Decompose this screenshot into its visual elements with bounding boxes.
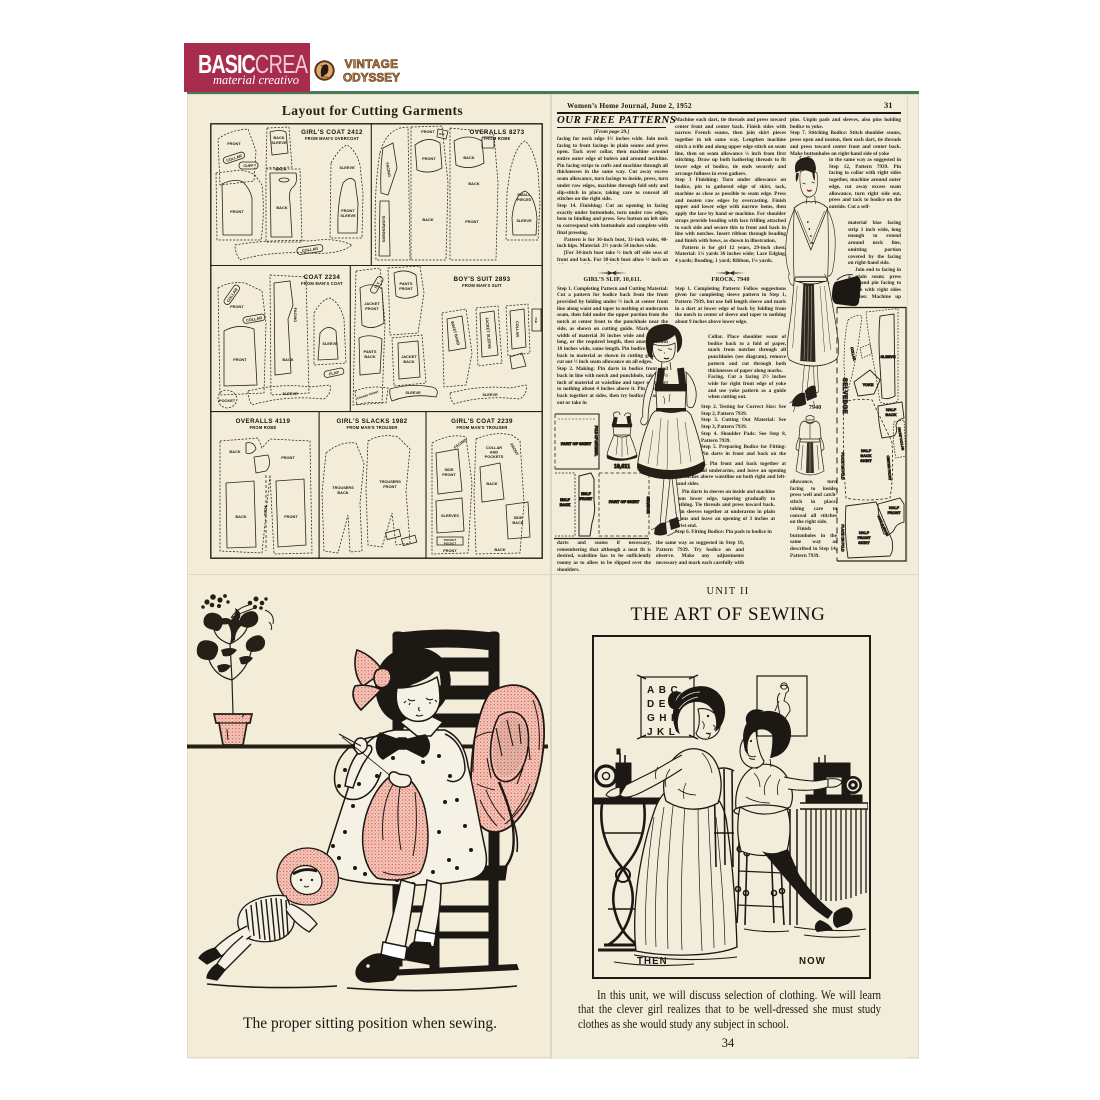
svg-text:JKL: JKL bbox=[647, 727, 679, 738]
svg-text:BACK: BACK bbox=[422, 217, 433, 222]
svg-text:BACK: BACK bbox=[403, 359, 414, 364]
svg-text:JACKET SLEEVE: JACKET SLEEVE bbox=[484, 317, 492, 350]
svg-text:OVERALLS 4119: OVERALLS 4119 bbox=[235, 418, 290, 425]
svg-text:FRONT: FRONT bbox=[227, 141, 241, 146]
svg-text:FROM MAN'S TROUSER: FROM MAN'S TROUSER bbox=[346, 425, 397, 430]
svg-text:FRONT: FRONT bbox=[399, 286, 413, 291]
svg-text:FRONT: FRONT bbox=[284, 514, 298, 519]
svg-text:SKIRT: SKIRT bbox=[858, 541, 870, 545]
svg-text:SKIRT: SKIRT bbox=[860, 459, 872, 463]
svg-text:FRONT: FRONT bbox=[383, 484, 397, 489]
svg-text:FRONT: FRONT bbox=[509, 442, 520, 457]
svg-text:BACK: BACK bbox=[560, 503, 571, 507]
svg-text:TAB: TAB bbox=[534, 317, 538, 324]
svg-text:FRONT: FRONT bbox=[442, 472, 456, 477]
svg-text:COLLAR: COLLAR bbox=[850, 347, 857, 362]
svg-text:BOY'S SUIT 2893: BOY'S SUIT 2893 bbox=[453, 276, 510, 283]
svg-text:FRONT: FRONT bbox=[580, 497, 593, 501]
svg-text:GIRL'S COAT 2412: GIRL'S COAT 2412 bbox=[301, 129, 363, 136]
svg-text:VINTAGE: VINTAGE bbox=[345, 57, 399, 71]
svg-text:FRONT: FRONT bbox=[422, 156, 436, 161]
svg-text:POCKETS: POCKETS bbox=[484, 454, 503, 459]
svg-text:FACING: FACING bbox=[293, 308, 298, 323]
svg-text:FRONT COLLAR: FRONT COLLAR bbox=[897, 427, 905, 451]
svg-text:SLEEVE: SLEEVE bbox=[322, 341, 338, 346]
svg-text:WAIST BAND: WAIST BAND bbox=[449, 321, 460, 346]
svg-text:FROM MAN'S COAT: FROM MAN'S COAT bbox=[301, 281, 343, 286]
svg-text:POCKET: POCKET bbox=[218, 398, 235, 403]
svg-text:BACK: BACK bbox=[886, 413, 897, 417]
svg-text:SLEEVES: SLEEVES bbox=[441, 513, 459, 518]
svg-text:BACK: BACK bbox=[282, 357, 293, 362]
svg-text:SLEEVE: SLEEVE bbox=[482, 392, 498, 397]
svg-text:SLEEVE: SLEEVE bbox=[405, 390, 421, 395]
svg-text:PART OF SKIRT: PART OF SKIRT bbox=[561, 441, 592, 446]
svg-text:SUSPENDERS: SUSPENDERS bbox=[381, 216, 386, 243]
svg-text:FACING: FACING bbox=[452, 437, 467, 450]
svg-text:FRONT: FRONT bbox=[465, 219, 479, 224]
svg-text:BACK: BACK bbox=[463, 155, 474, 160]
svg-text:FROM ROBE: FROM ROBE bbox=[249, 425, 276, 430]
svg-text:FROM MAN'S TROUSER: FROM MAN'S TROUSER bbox=[456, 425, 507, 430]
svg-text:ODYSSEY: ODYSSEY bbox=[343, 71, 400, 85]
svg-text:FROM MAN'S OVERCOAT: FROM MAN'S OVERCOAT bbox=[304, 136, 358, 141]
svg-text:GIRL'S COAT 2239: GIRL'S COAT 2239 bbox=[451, 418, 513, 425]
svg-text:YOKE: YOKE bbox=[863, 383, 874, 387]
svg-text:BACK: BACK bbox=[235, 514, 246, 519]
svg-text:SLEEVE: SLEEVE bbox=[271, 140, 287, 145]
svg-text:PART OF SKIRT: PART OF SKIRT bbox=[609, 499, 640, 504]
svg-text:HALF: HALF bbox=[886, 408, 897, 412]
svg-text:FRONT: FRONT bbox=[887, 511, 901, 515]
svg-text:GIRL'S SLACKS 1982: GIRL'S SLACKS 1982 bbox=[336, 418, 407, 425]
svg-text:FRONT: FRONT bbox=[281, 455, 295, 460]
svg-text:FACING FRONT: FACING FRONT bbox=[356, 390, 379, 401]
svg-text:PLACE ON FOLD: PLACE ON FOLD bbox=[841, 524, 845, 552]
svg-text:COAT 2234: COAT 2234 bbox=[303, 274, 340, 281]
svg-text:FRONT: FRONT bbox=[230, 304, 244, 309]
svg-text:OVERALLS 8273: OVERALLS 8273 bbox=[469, 129, 524, 136]
svg-text:FRONT: FRONT bbox=[230, 209, 244, 214]
svg-text:BACK: BACK bbox=[861, 454, 872, 458]
svg-text:HALF: HALF bbox=[889, 506, 900, 510]
svg-text:FACING: FACING bbox=[384, 162, 391, 177]
svg-text:SLEEVE: SLEEVE bbox=[282, 391, 298, 396]
svg-text:SELVEDGE: SELVEDGE bbox=[646, 497, 650, 514]
svg-text:BACK: BACK bbox=[229, 449, 240, 454]
svg-text:POCKET: POCKET bbox=[443, 542, 456, 546]
svg-text:SLEEVE: SLEEVE bbox=[339, 165, 355, 170]
svg-text:SLEEVE: SLEEVE bbox=[340, 213, 356, 218]
svg-text:FOLD: FOLD bbox=[263, 506, 268, 517]
svg-text:BACK: BACK bbox=[364, 354, 375, 359]
svg-text:FRONT: FRONT bbox=[421, 129, 435, 134]
svg-text:SLEEVE: SLEEVE bbox=[881, 355, 896, 359]
svg-text:FOLD OF MATERIAL: FOLD OF MATERIAL bbox=[594, 426, 598, 457]
svg-text:BACK: BACK bbox=[276, 205, 287, 210]
svg-text:FRONT: FRONT bbox=[857, 536, 871, 540]
svg-text:BACK: BACK bbox=[337, 490, 348, 495]
svg-text:HALF: HALF bbox=[581, 492, 591, 496]
svg-text:BACK: BACK bbox=[486, 481, 497, 486]
svg-text:HALF: HALF bbox=[861, 449, 872, 453]
svg-text:BACK: BACK bbox=[275, 167, 286, 172]
svg-text:SLEEVE: SLEEVE bbox=[516, 218, 532, 223]
svg-text:HALF: HALF bbox=[859, 531, 870, 535]
svg-text:FRONT: FRONT bbox=[443, 548, 457, 553]
svg-text:CENTER FRONT: CENTER FRONT bbox=[886, 455, 892, 480]
svg-text:FROM MAN'S SUIT: FROM MAN'S SUIT bbox=[462, 283, 502, 288]
svg-text:BACK: BACK bbox=[494, 547, 505, 552]
svg-text:BIB: BIB bbox=[439, 132, 445, 136]
svg-text:PIECES: PIECES bbox=[516, 197, 531, 202]
svg-text:BACK: BACK bbox=[512, 520, 523, 525]
svg-text:CUFF: CUFF bbox=[243, 163, 254, 168]
svg-text:HALF: HALF bbox=[560, 498, 570, 502]
svg-text:BACK: BACK bbox=[468, 181, 479, 186]
svg-text:COLLAR: COLLAR bbox=[514, 321, 520, 338]
svg-text:FRONT: FRONT bbox=[365, 306, 379, 311]
svg-text:FRONT: FRONT bbox=[233, 357, 247, 362]
svg-text:10,611: 10,611 bbox=[614, 464, 630, 470]
